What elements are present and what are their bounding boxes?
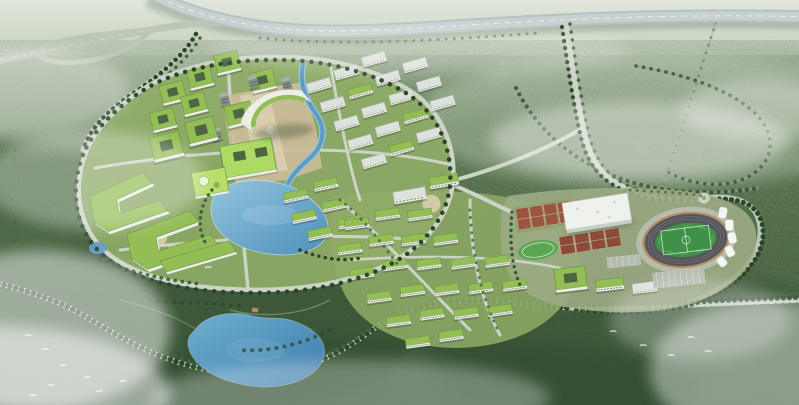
campus-aerial-rendering [0,0,799,405]
courtyard-dorm [552,266,589,295]
grandstand-roof [725,220,733,231]
haze-streak [210,26,630,74]
lake-sparkle [242,205,298,225]
fog-patch [610,280,790,360]
roundabout-island [702,196,706,200]
rendering-canvas [0,0,799,405]
